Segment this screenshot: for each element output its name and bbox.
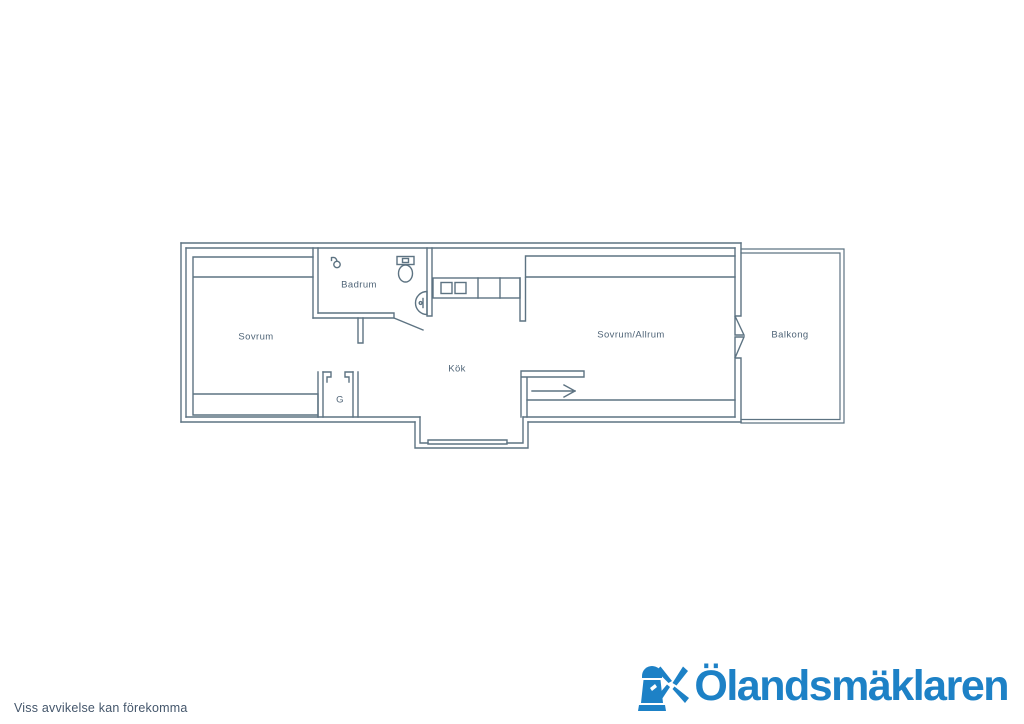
hall-wall-stub	[358, 318, 363, 343]
disclaimer-text: Viss avvikelse kan förekomma	[14, 701, 188, 715]
floorplan-page: Sovrum Badrum Kök G Sovrum/Allrum Balkon…	[0, 0, 1024, 724]
kitchen-wall-stub	[520, 278, 526, 321]
label-badrum: Badrum	[341, 280, 377, 291]
badrum-door-leaf	[394, 318, 423, 330]
shower-icon	[332, 257, 341, 267]
floorplan-drawing	[0, 0, 1024, 724]
entry-arrow	[532, 385, 575, 397]
kitchen-counter	[433, 278, 520, 298]
windmill-icon	[638, 658, 690, 714]
sink-icon	[416, 292, 428, 315]
balcony-door	[735, 316, 744, 358]
allrum-top-band	[526, 256, 736, 277]
toilet-icon	[397, 257, 414, 283]
label-sovrum: Sovrum	[238, 332, 273, 343]
label-closet-g: G	[336, 395, 344, 406]
window	[428, 440, 507, 444]
label-kok: Kök	[448, 364, 466, 375]
label-balkong: Balkong	[771, 330, 808, 341]
brand-logo: Ölandsmäklaren	[638, 658, 1008, 714]
outer-walls	[181, 243, 741, 448]
label-sovrum-allrum: Sovrum/Allrum	[597, 330, 665, 341]
stove-icon	[441, 283, 466, 294]
brand-name: Ölandsmäklaren	[694, 665, 1008, 708]
entry-wall	[521, 371, 584, 417]
